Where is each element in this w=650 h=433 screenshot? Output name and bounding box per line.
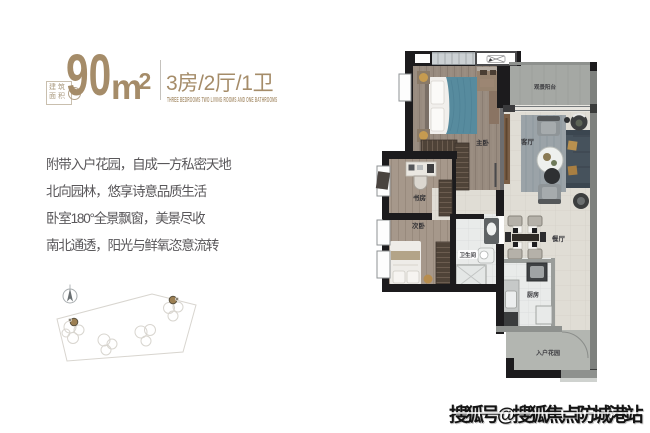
svg-text:书房: 书房 (413, 193, 427, 202)
svg-text:次卧: 次卧 (412, 221, 426, 230)
svg-text:入户花园: 入户花园 (535, 349, 560, 357)
svg-text:卫生间: 卫生间 (460, 251, 477, 259)
svg-text:餐厅: 餐厅 (551, 234, 566, 243)
svg-text:厨房: 厨房 (527, 291, 539, 299)
svg-text:客厅: 客厅 (520, 137, 535, 146)
svg-text:观景阳台: 观景阳台 (534, 83, 557, 91)
svg-text:主卧: 主卧 (476, 138, 490, 147)
